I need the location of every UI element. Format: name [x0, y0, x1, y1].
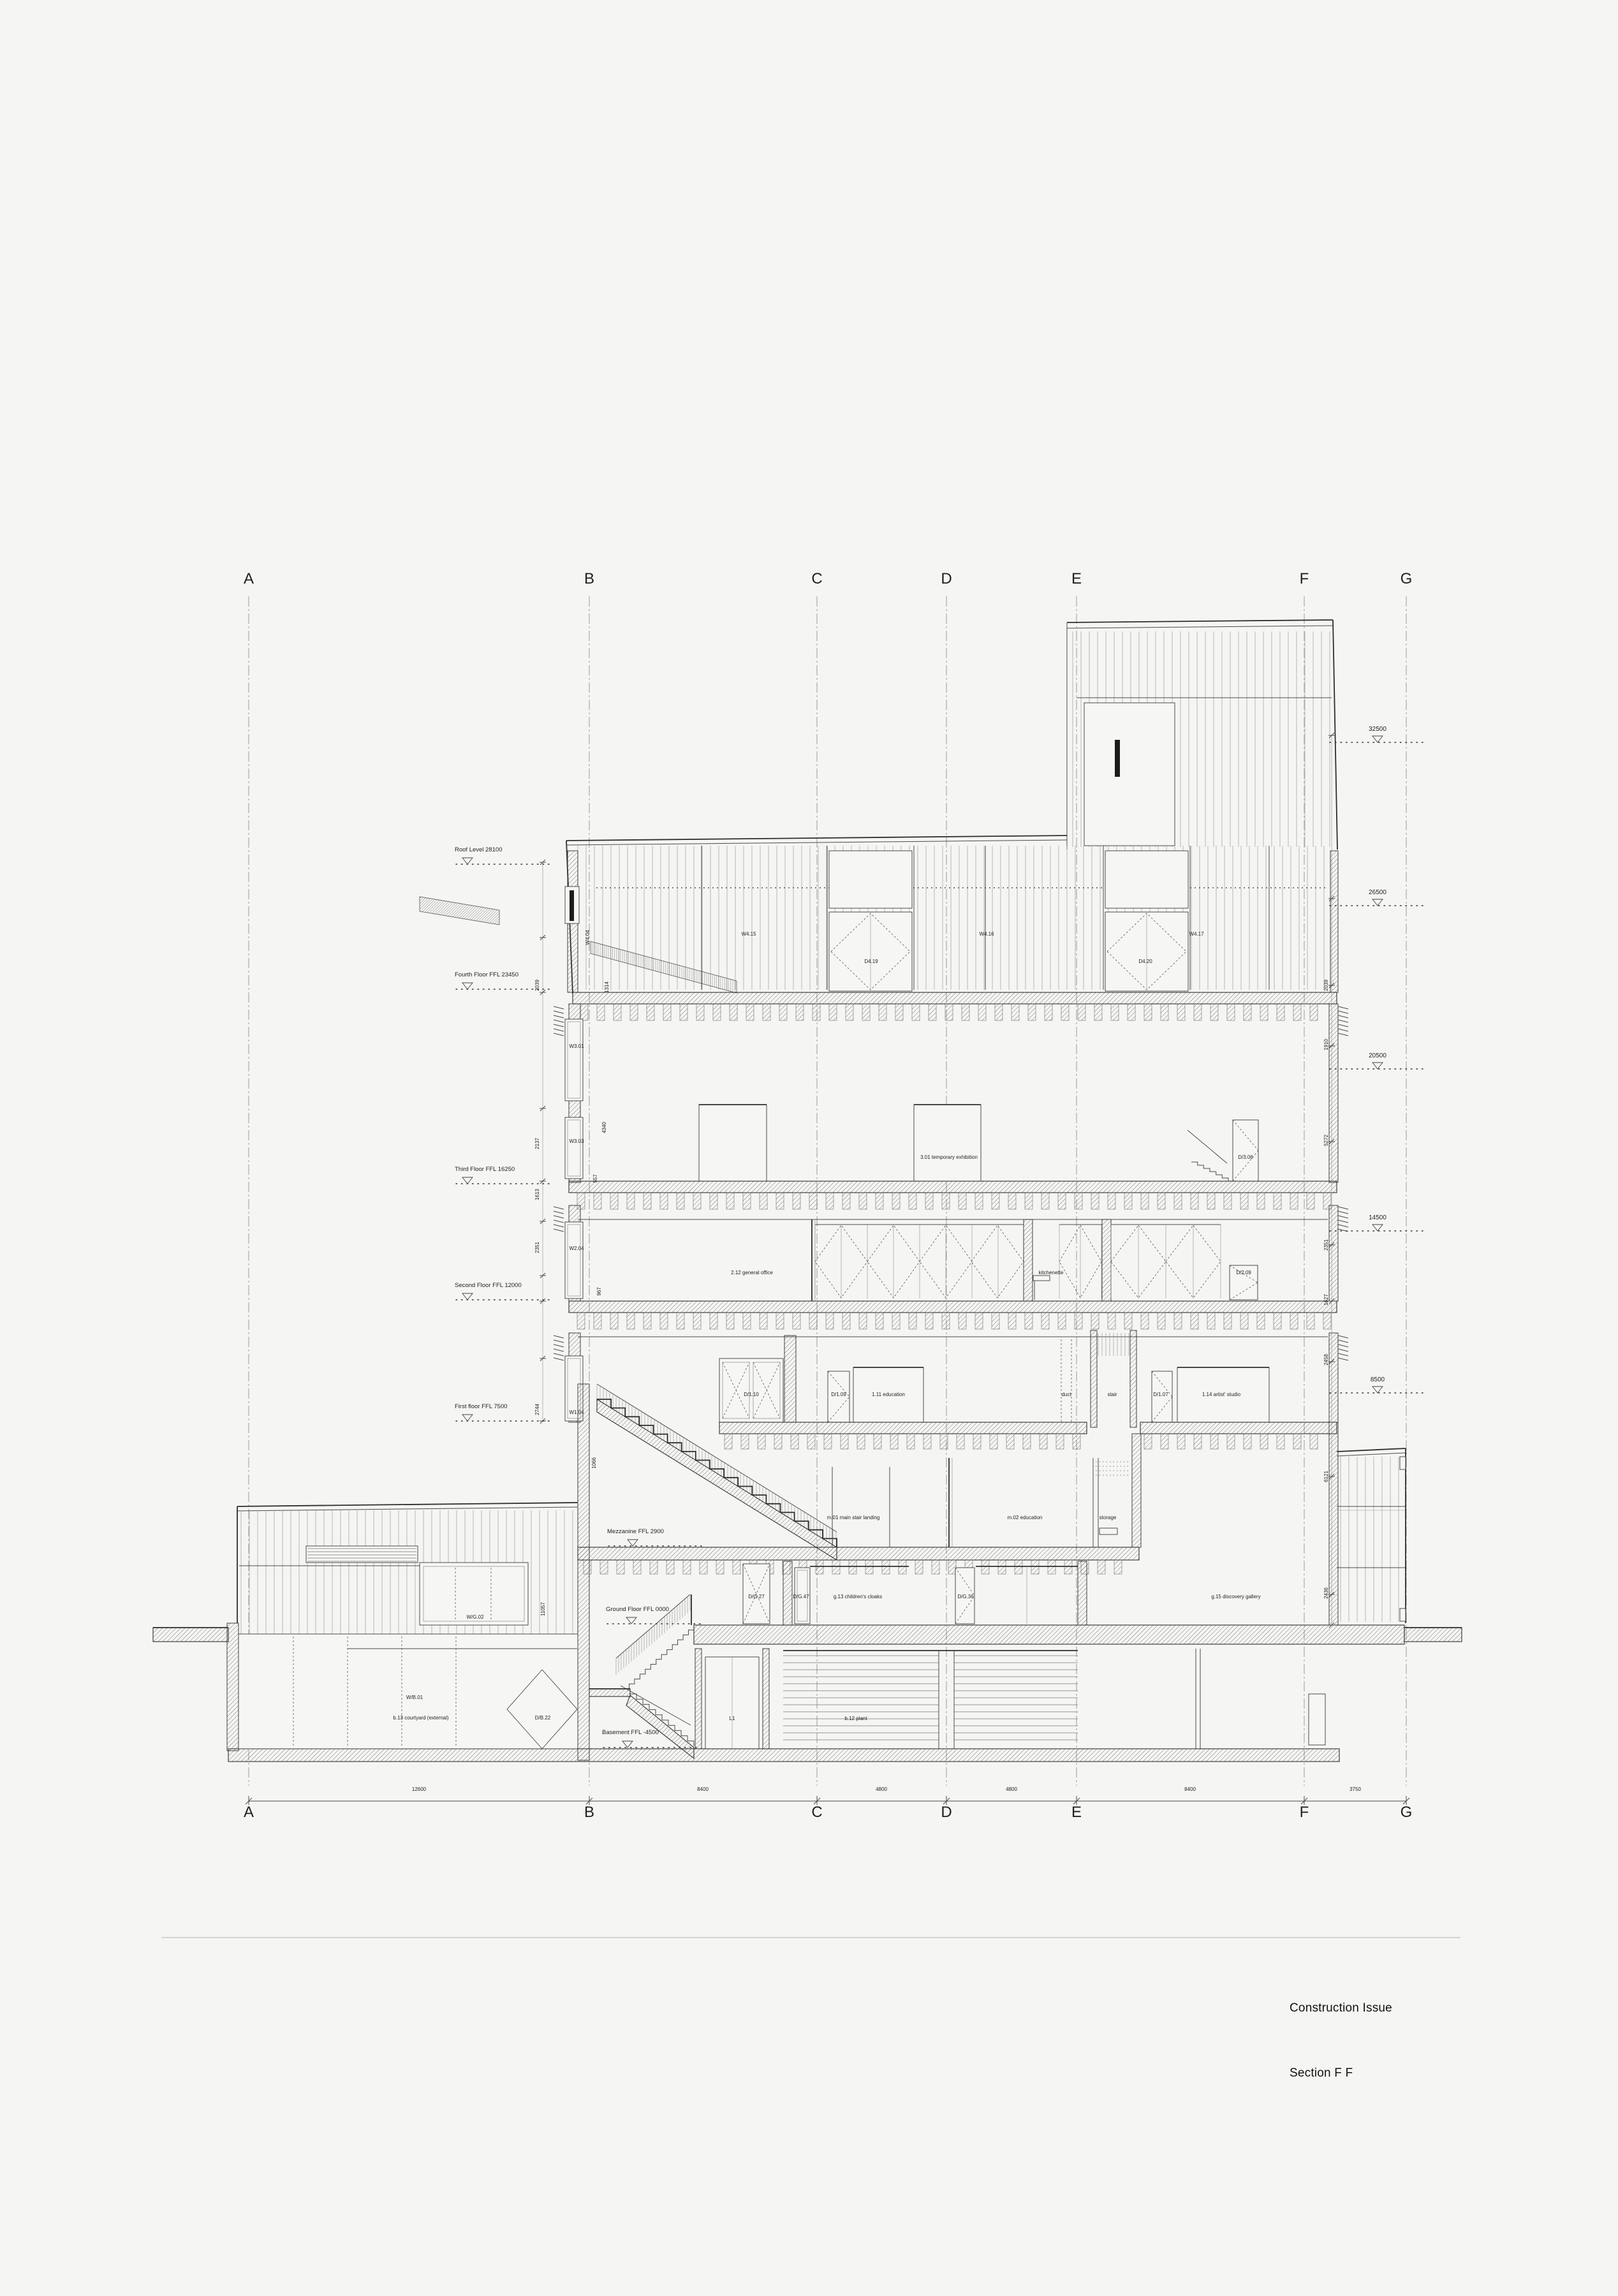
grid-letter-bottom-f: F: [1300, 1805, 1309, 1820]
annotation-stair: stair: [1107, 1392, 1117, 1397]
dim-inner-557: 557: [593, 1174, 598, 1182]
annotation-2-12-general-office: 2.12 general office: [731, 1270, 773, 1276]
dim-left-1613: 1613: [535, 1189, 540, 1200]
bottom-dim-4800: 4800: [876, 1787, 887, 1792]
annotation-w4-17: W4.17: [1189, 932, 1203, 937]
annotation-w-b-01: W/B.01: [406, 1695, 423, 1700]
bottom-dim-12600: 12600: [412, 1787, 426, 1792]
bottom-dim-3750: 3750: [1350, 1787, 1361, 1792]
annotation-duct: duct: [1061, 1392, 1071, 1397]
grid-letter-top-f: F: [1300, 571, 1309, 587]
grid-letter-bottom-e: E: [1071, 1805, 1082, 1820]
annotation-d-g-47: D/G.47: [793, 1594, 809, 1600]
level-label-fourth-floor-ffl-23450: Fourth Floor FFL 23450: [455, 972, 518, 978]
grid-letter-top-d: D: [941, 571, 952, 587]
annotation-storage: storage: [1100, 1515, 1117, 1520]
annotation-d-2-09: D/2.09: [1236, 1270, 1251, 1276]
dim-right-6121: 6121: [1324, 1471, 1329, 1482]
grid-letter-top-g: G: [1401, 571, 1413, 587]
annotation-w-g-02: W/G.02: [466, 1615, 483, 1620]
grid-letter-bottom-a: A: [244, 1805, 254, 1820]
level-label-roof-level-28100: Roof Level 28100: [455, 847, 502, 853]
elev-marker-32500: 32500: [1369, 726, 1386, 733]
grid-letter-bottom-d: D: [941, 1805, 952, 1820]
dim-left-2744: 2744: [535, 1404, 540, 1415]
annotation-w4-16: W4.16: [979, 932, 994, 937]
grid-letter-top-a: A: [244, 571, 254, 587]
dim-right-2458: 2458: [1324, 1354, 1329, 1365]
dim-right-5272: 5272: [1324, 1135, 1329, 1146]
issue-status: Construction Issue: [1290, 2001, 1392, 2015]
grid-letter-top-e: E: [1071, 571, 1082, 587]
dim-right-1627: 1627: [1324, 1294, 1329, 1306]
level-label-second-floor-ffl-12000: Second Floor FFL 12000: [455, 1283, 522, 1289]
annotation-w3-01: W3.01: [569, 1044, 584, 1049]
annotation-g-15-discovery-gallery: g.15 discovery gallery: [1211, 1594, 1260, 1600]
dim-right-1910: 1910: [1324, 1039, 1329, 1050]
drawing-sheet: AABBCCDDEEFFGG1260084004800480084003750R…: [0, 0, 1618, 2296]
annotation-w2-04: W2.04: [569, 1246, 584, 1251]
dim-left-2137: 2137: [535, 1138, 540, 1149]
drawing-title: Section F F: [1290, 2066, 1353, 2080]
annotation-d-g-27: D/G.27: [748, 1594, 764, 1600]
bottom-dim-8400: 8400: [697, 1787, 709, 1792]
section-linework: [0, 0, 1618, 2296]
annotation-3-01-temporary-exhibition: 3.01 temporary exhibition: [920, 1155, 978, 1160]
bottom-dim-8400: 8400: [1184, 1787, 1196, 1792]
level-label-mezzanine-ffl-2900: Mezzanine FFL 2900: [607, 1529, 664, 1535]
annotation-g-13-children-s-cloaks: g.13 children's cloaks: [834, 1594, 882, 1600]
annotation-d-1-10: D/1.10: [744, 1392, 759, 1397]
annotation-1-14-artist-studio: 1.14 artist' studio: [1202, 1392, 1240, 1397]
annotation-m-01-main-stair-landing: m.01 main stair landing: [827, 1515, 880, 1520]
dim-right-2351: 2351: [1324, 1239, 1329, 1251]
annotation-d4-19: D4.19: [864, 959, 878, 964]
dim-inner-1066: 1066: [592, 1457, 597, 1469]
level-label-first-floor-ffl-7500: First floor FFL 7500: [455, 1404, 508, 1410]
grid-letter-bottom-b: B: [584, 1805, 594, 1820]
annotation-1-11-education: 1.11 education: [872, 1392, 905, 1397]
dim-left-2351: 2351: [535, 1242, 540, 1253]
dim-right-2039: 2039: [1324, 980, 1329, 991]
level-label-basement-ffl-4500: Basement FFL -4500: [602, 1730, 659, 1736]
annotation-w4-15: W4.15: [741, 932, 756, 937]
annotation-kitchenette: kitchenette: [1039, 1270, 1064, 1276]
dim-inner-11057: 11057: [541, 1602, 546, 1616]
dim-inner-4340: 4340: [602, 1122, 607, 1133]
grid-letter-top-b: B: [584, 571, 594, 587]
annotation-w4-04: W4.04: [585, 930, 591, 945]
elev-marker-20500: 20500: [1369, 1053, 1386, 1059]
annotation-b-12-plant: b.12 plant: [844, 1716, 867, 1721]
grid-letter-bottom-g: G: [1401, 1805, 1413, 1820]
annotation-w1-04: W1.04: [569, 1410, 584, 1415]
annotation-d-3-06: D/3.06: [1238, 1155, 1253, 1160]
annotation-d-1-09: D/1.09: [831, 1392, 846, 1397]
annotation-l1: L1: [730, 1716, 735, 1721]
annotation-m-02-education: m.02 education: [1008, 1515, 1043, 1520]
annotation-d-1-07: D/1.07: [1153, 1392, 1168, 1397]
elev-marker-26500: 26500: [1369, 890, 1386, 896]
annotation-w3-03: W3.03: [569, 1139, 584, 1144]
level-label-ground-floor-ffl-0000: Ground Floor FFL 0000: [606, 1607, 669, 1613]
grid-letter-bottom-c: C: [811, 1805, 822, 1820]
dim-inner-1314: 1314: [605, 982, 610, 993]
annotation-b-13-courtyard-external: b.13 courtyard (external): [393, 1716, 448, 1721]
bottom-dim-4800: 4800: [1006, 1787, 1017, 1792]
annotation-d-b-22: D/B.22: [535, 1716, 550, 1721]
grid-letter-top-c: C: [811, 571, 822, 587]
level-label-third-floor-ffl-16250: Third Floor FFL 16250: [455, 1166, 515, 1173]
dim-inner-967: 967: [597, 1287, 602, 1295]
elev-marker-14500: 14500: [1369, 1215, 1386, 1221]
annotation-d-g-36: D/G.36: [957, 1594, 973, 1600]
dim-left-2039: 2039: [535, 980, 540, 991]
dim-right-2436: 2436: [1324, 1587, 1329, 1599]
annotation-d4-20: D4.20: [1138, 959, 1152, 964]
elev-marker-8500: 8500: [1371, 1377, 1385, 1383]
